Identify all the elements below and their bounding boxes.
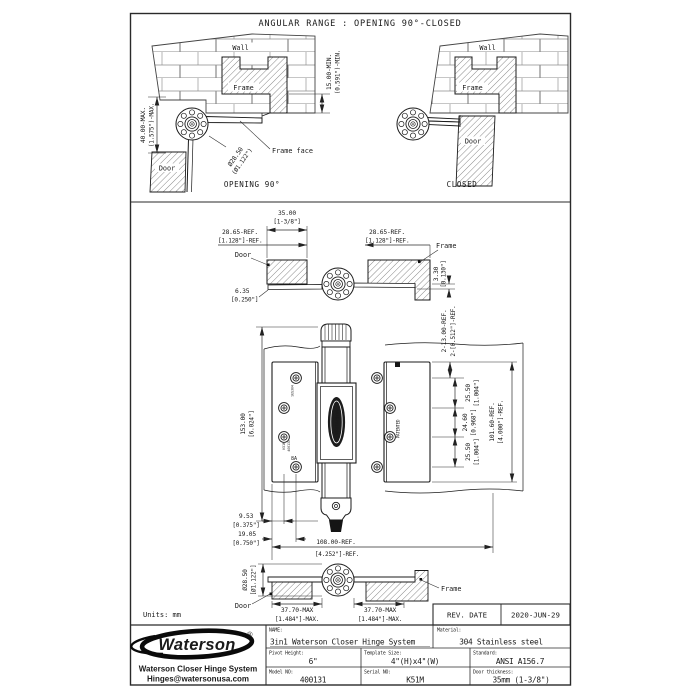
dim-213-mm: 2-13.00-REF. (441, 309, 448, 352)
frame-label: Frame (462, 84, 482, 92)
dim-2865r-mm: 28.65-REF. (369, 229, 405, 236)
upper-barrel (322, 347, 350, 383)
material-label: Material: (437, 628, 461, 634)
dim-953-mm: 9.53 (239, 513, 254, 520)
standard-label: Standard: (473, 651, 497, 657)
stamp-material: SUS304 (291, 385, 295, 396)
dim-dia-mm: Ø28.50 (241, 569, 249, 591)
hinge-drawing-svg: ANGULAR RANGE : OPENING 90°-CLOSED Wall … (0, 0, 700, 700)
screw-hole (291, 373, 302, 384)
dim-10160-mm: 101.60-REF. (489, 402, 496, 442)
dim-153-mm: 153.00 (240, 413, 247, 435)
dim-2865r-in: [1.128"]-REF. (365, 238, 409, 245)
screw-hole (385, 432, 396, 443)
dim-377r-in: [1.484"]-MAX. (358, 616, 402, 623)
frame-label: Frame (436, 242, 456, 250)
stamp-model-number: 400131 (287, 440, 291, 451)
pivot-height-label: Pivot Height: (269, 651, 304, 657)
name-value: 3in1 Waterson Closer Hinge System (270, 638, 416, 647)
dim-213-in: 2-[0.512"]-REF. (450, 305, 457, 356)
stamp-model: K51M (282, 441, 286, 450)
dim-2865l-in: [1.128"]-REF. (218, 238, 262, 245)
dim-108-mm: 108.00-REF. (316, 539, 356, 546)
barrel-logo-text: Waterson (335, 409, 341, 435)
technical-drawing-sheet: ANGULAR RANGE : OPENING 90°-CLOSED Wall … (0, 0, 700, 700)
dim-953-in: [0.375"] (232, 522, 259, 529)
stamp-patented: PATENTED (396, 419, 401, 438)
wall-label: Wall (232, 44, 248, 52)
door-label: Door (235, 602, 251, 610)
dim-2550b-in: [1.004"] (474, 438, 481, 465)
rev-date-label: REV. DATE (447, 611, 487, 620)
frame-label: Frame (441, 585, 461, 593)
screw-hole (372, 373, 383, 384)
lower-barrel (322, 463, 350, 498)
dim-1905-mm: 19.05 (238, 531, 256, 538)
serial-no-value: K51M (406, 676, 424, 685)
registered-mark-icon: ® (247, 630, 253, 639)
frame-face-label: Frame face (272, 147, 313, 155)
template-size-label: Template Size: (364, 651, 402, 657)
revision-table: REV. DATE 2020-JUN-29 (433, 604, 570, 625)
material-value: 304 Stainless steel (459, 638, 543, 647)
top-cap (321, 324, 351, 341)
model-no-value: 400131 (300, 676, 327, 685)
pivot-height-value: 6" (309, 657, 318, 666)
frame-label: Frame (233, 84, 253, 92)
dim-40-mm: 40.00-MAX. (140, 107, 147, 143)
dim-2460-in: [0.968"] (471, 409, 478, 436)
model-no-label: Model NO: (269, 670, 293, 676)
door-thickness-value: 35mm (1-3/8") (492, 676, 549, 685)
dim-2865l-mm: 28.65-REF. (222, 229, 258, 236)
screw-hole (372, 462, 383, 473)
hinge-knuckle (397, 108, 429, 140)
dim-15-mm: 15.00-MIN. (326, 54, 333, 90)
company-email: Hinges@watersonusa.com (147, 675, 249, 684)
dim-40-in: (1.575")-MAX. (149, 103, 156, 147)
dim-635-mm: 6.35 (235, 288, 250, 295)
units-note: Units: mm (143, 611, 181, 619)
dim-330-in: [0.130"] (441, 260, 448, 287)
name-label: NAME: (269, 628, 282, 634)
dim-15-in: (0.591")-MIN. (335, 50, 342, 94)
logo-wordmark: Waterson (158, 636, 235, 654)
wall-label: Wall (479, 44, 495, 52)
dim-377r-mm: 37.70-MAX (364, 607, 397, 614)
valve-tab (329, 520, 343, 532)
leaf-index-mark (395, 363, 400, 368)
hinge-knuckle (322, 268, 354, 300)
right-leaf (384, 362, 430, 482)
opening-90-caption: OPENING 90° (224, 180, 280, 189)
dim-2550b-mm: 25.50 (465, 443, 472, 461)
angular-range-title: ANGULAR RANGE : OPENING 90°-CLOSED (258, 19, 461, 29)
closed-caption: CLOSED (447, 180, 478, 189)
dim-108-in: [4.252"]-REF. (315, 551, 359, 558)
screw-hole (291, 462, 302, 473)
template-size-value: 4"(H)x4"(W) (391, 657, 439, 666)
standard-value: ANSI A156.7 (496, 657, 545, 666)
door-section (267, 260, 307, 284)
dim-10160-in: [4.000"]-REF. (498, 400, 505, 444)
stamp-rating: 8A (291, 456, 297, 462)
door-label: Door (159, 165, 175, 173)
door-section (272, 582, 312, 599)
hinge-knuckle (176, 108, 208, 140)
dim-1905-in: [0.750"] (232, 540, 259, 547)
rev-date-value: 2020-JUN-29 (511, 611, 560, 620)
dim-2550t-in: [1.004"] (474, 379, 481, 406)
dim-35-mm: 35.00 (278, 210, 296, 217)
dim-2460-mm: 24.60 (462, 413, 469, 431)
screw-hole (385, 403, 396, 414)
dim-635-in: [0.250"] (231, 297, 258, 304)
hinge-knuckle (322, 564, 354, 596)
barrel-logo: Waterson (328, 397, 345, 447)
dim-35-in: [1-3/8"] (273, 219, 300, 226)
serial-no-label: Serial NO: (364, 670, 391, 676)
door-section (456, 116, 495, 186)
dim-2550t-mm: 25.50 (465, 384, 472, 402)
screw-hole (279, 403, 290, 414)
door-label: Door (235, 251, 251, 259)
company-name: Waterson Closer Hinge System (139, 665, 257, 674)
dim-377l-in: [1.484"]-MAX. (275, 616, 319, 623)
dim-dia-in: [Ø1.122"] (251, 565, 258, 596)
door-label: Door (465, 138, 481, 146)
dim-153-in: [6.024"] (249, 410, 256, 437)
dim-377l-mm: 37.70-MAX (281, 607, 314, 614)
dim-330-mm: 3.30 (433, 266, 440, 281)
